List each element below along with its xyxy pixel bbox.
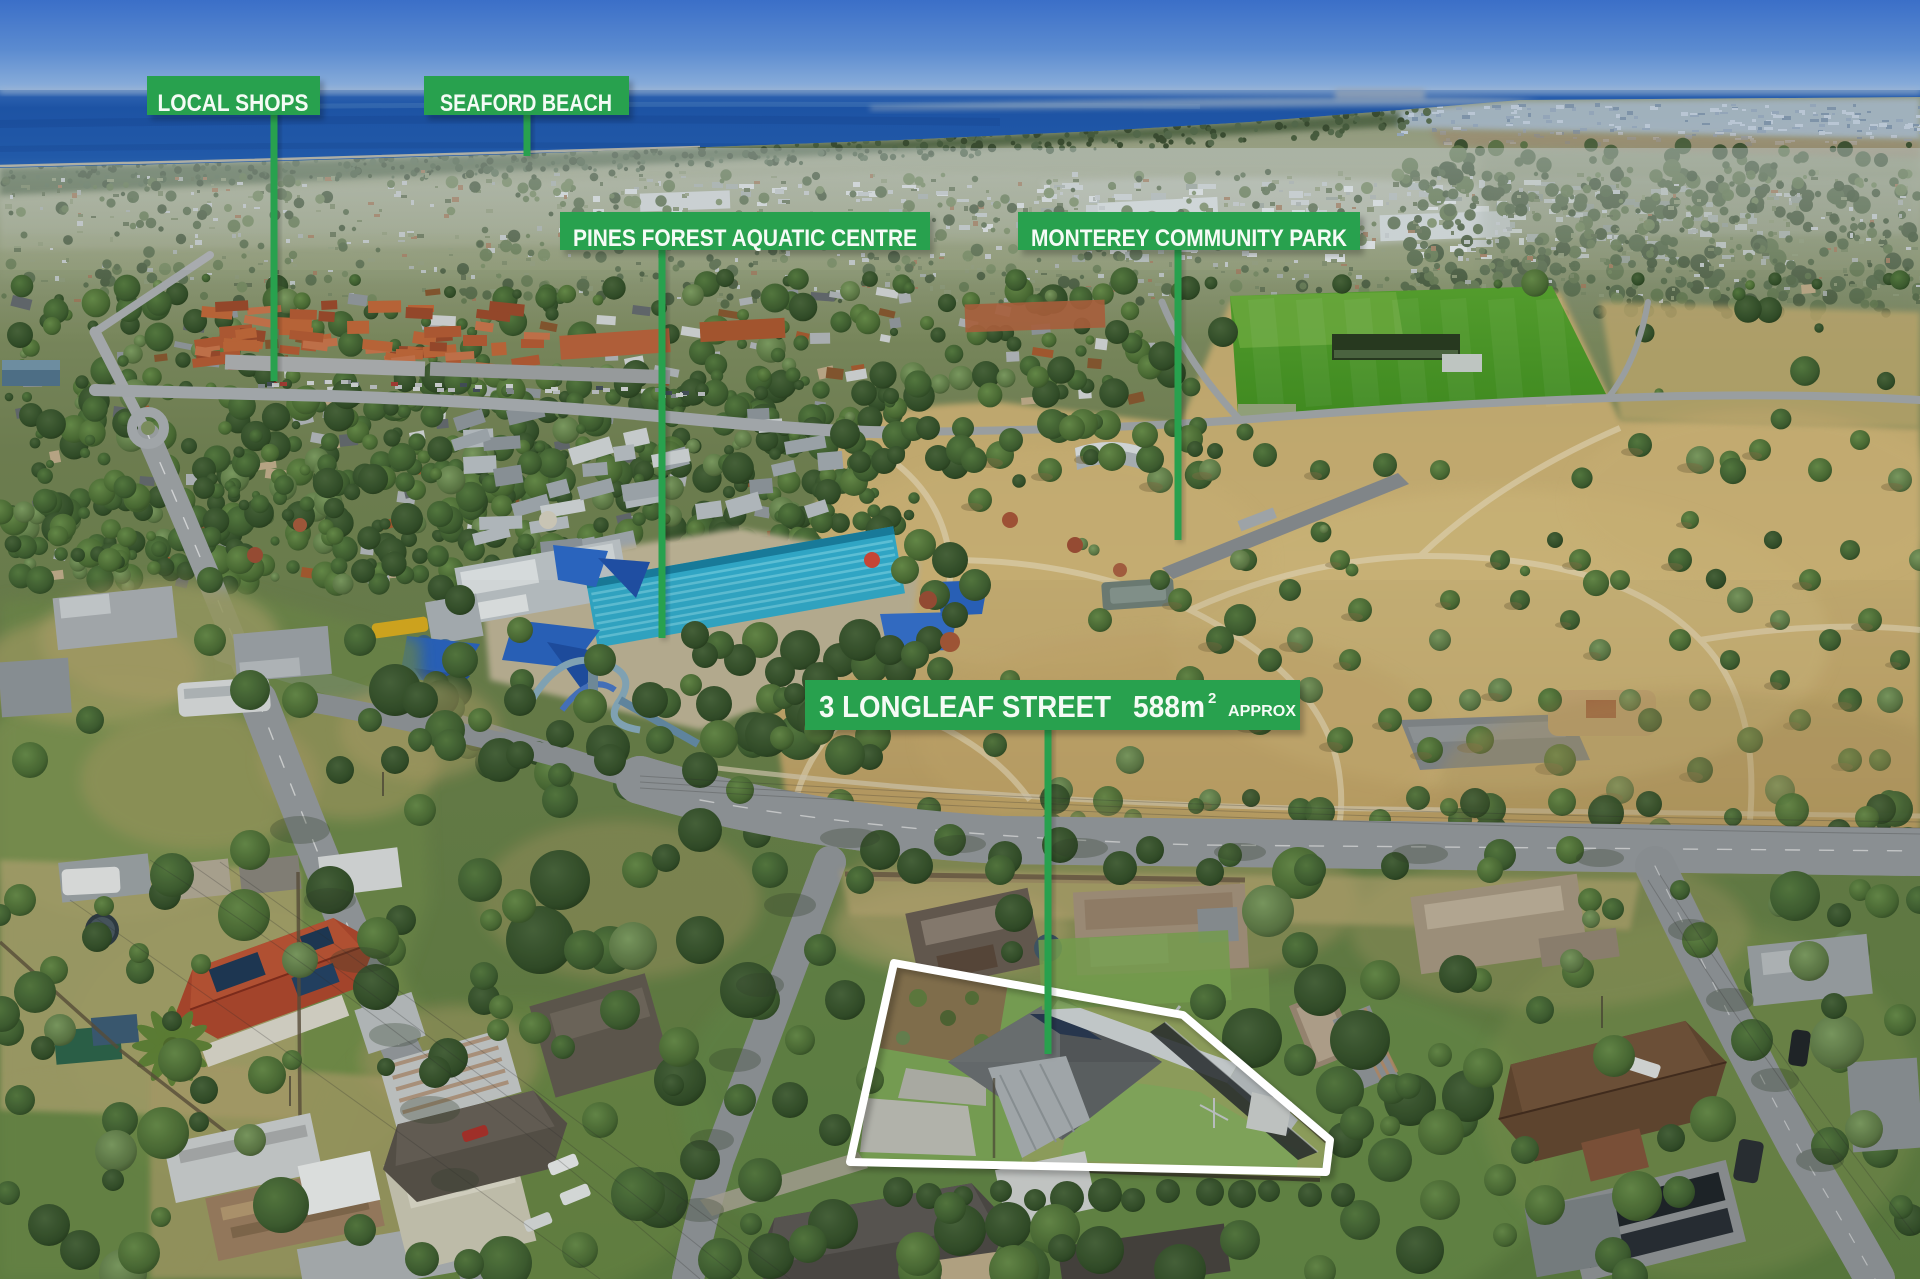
svg-text:588m: 588m <box>1133 689 1205 724</box>
svg-text:MONTEREY COMMUNITY PARK: MONTEREY COMMUNITY PARK <box>1031 225 1348 252</box>
svg-text:3 LONGLEAF STREET: 3 LONGLEAF STREET <box>819 689 1111 724</box>
svg-text:LOCAL SHOPS: LOCAL SHOPS <box>158 90 309 117</box>
svg-text:APPROX: APPROX <box>1228 703 1296 720</box>
svg-text:2: 2 <box>1208 690 1216 707</box>
svg-text:PINES FOREST AQUATIC CENTRE: PINES FOREST AQUATIC CENTRE <box>573 225 917 252</box>
svg-text:SEAFORD BEACH: SEAFORD BEACH <box>440 90 612 117</box>
